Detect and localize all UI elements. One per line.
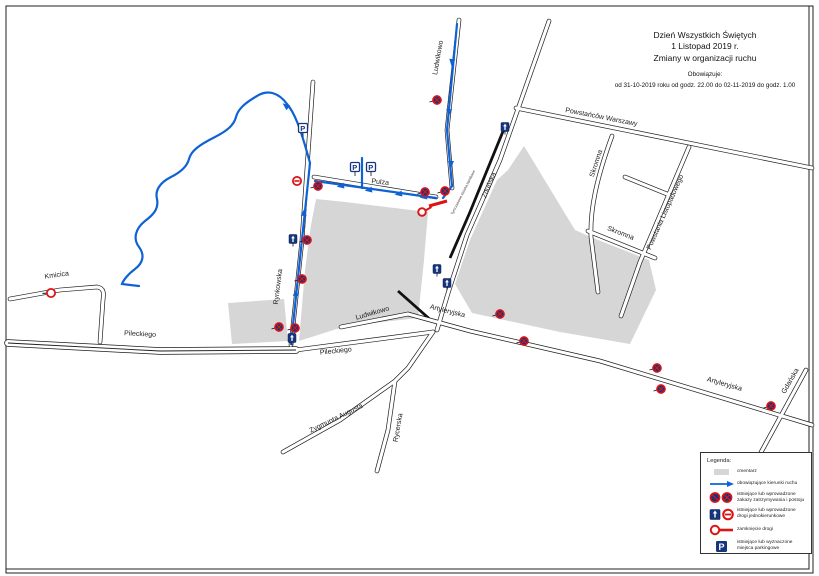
street-label-Artyleryjska: Artyleryjska [429,304,466,320]
one-way-sign-icon [433,265,441,277]
parking-sign-icon: P [351,163,360,177]
legend-item-no-stopping: istniejące lub wprowadzone zakazy zatrzy… [707,491,807,504]
parking-sign-icon: P [299,124,308,138]
legend-item-label: obowiązujące kierunki ruchu [737,481,807,487]
no-stopping-sign-icon [430,96,442,104]
street-label-Kmicica: Kmicica [44,270,69,280]
legend-item-directions: obowiązujące kierunki ruchu [707,480,807,488]
validity-label: Obowiązuje: [596,71,814,80]
road-Kmicica [10,287,103,342]
legend-item-label: zamknięcie drogi [737,527,807,533]
road-closure-icon [707,524,737,536]
one-way-sign-icon [289,235,297,247]
direction-arrow-icon [707,480,737,488]
closure-bar [429,201,447,206]
parking-sign-icon: P [367,163,376,177]
no-stopping-signs-icon [707,491,737,504]
legend-item-label: istniejące lub wprowadzone zakazy zatrzy… [737,492,807,504]
map-title-block: Dzień Wszystkich Świętych 1 Listopad 201… [596,30,814,89]
street-label-Artyleryjska: Artyleryjska [706,376,743,393]
sign-bar [294,180,299,182]
street-label-Zygmunta-Augusta: Zygmunta Augusta [309,403,365,435]
sign-letter: P [300,124,305,133]
legend-item-parking: P istniejące lub wyznaczone miejsca park… [707,540,807,553]
street-label-Powstania-Listopadowego: Powstania Listopadowego [646,174,686,251]
legend-item-label: istniejące lub wprowadzone drogi jednoki… [737,508,807,520]
legend-item-label: istniejące lub wyznaczone miejsca parkin… [737,540,807,552]
street-label-Rycerska: Rycerska [393,413,405,443]
validity-text: od 31-10-2019 roku od godz. 22.00 do 02-… [596,82,814,89]
street-label-Pileckiego: Pileckiego [124,330,156,339]
cemetery-swatch-icon [707,468,737,476]
sign-letter: P [368,163,373,172]
title-line-1: Dzień Wszystkich Świętych [596,30,814,41]
route-line [122,93,310,286]
legend-item-one-way: istniejące lub wprowadzone drogi jednoki… [707,508,807,521]
road-lacznik-skromna [625,177,667,194]
legend-item-closure: zamknięcie drogi [707,524,807,536]
no-traffic-sign-icon [43,289,56,297]
no-stopping-sign-icon [288,324,300,332]
street-label-Ludwikowo-polnoc: Ludwikowo [432,40,445,75]
no-stopping-sign-icon [438,187,450,195]
no-entry-sign-icon [293,177,301,185]
sign-face [47,289,55,297]
title-line-3: Zmiany w organizacji ruchu [596,53,814,64]
closure-stem [425,207,431,211]
no-stopping-sign-icon [650,364,662,372]
svg-text:P: P [718,542,724,552]
legend-title: Legenda: [707,458,807,464]
closure-sign-icon [418,207,431,216]
sign-letter: P [352,163,357,172]
legend-item-label: cmentarz [737,469,807,475]
title-line-2: 1 Listopad 2019 r. [596,41,814,52]
legend-item-cemetery: cmentarz [707,468,807,476]
one-way-signs-icon [707,508,737,521]
road-Powstancow-Warszawy [516,108,812,168]
no-stopping-sign-icon [654,385,666,393]
no-stopping-sign-icon [311,182,323,190]
traffic-map-page: Tymczasowe stoiska handlowePileckiegoPil… [0,0,819,576]
sign-face [418,208,426,216]
parking-sign-icon: P [707,540,737,553]
legend-panel: Legenda: cmentarz obowiązujące kierunki … [700,452,812,554]
